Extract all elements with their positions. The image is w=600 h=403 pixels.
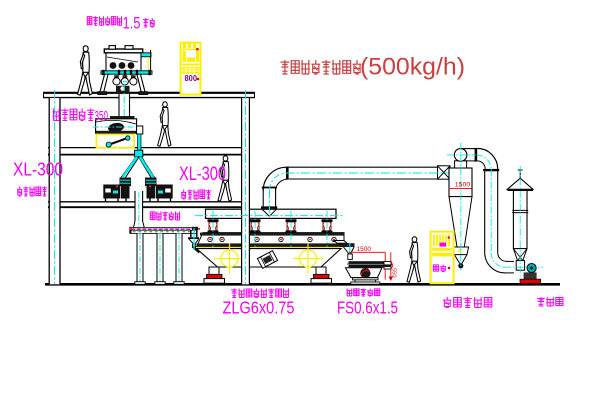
svg-text:1500: 1500: [455, 182, 471, 189]
svg-text:350: 350: [95, 108, 109, 124]
svg-text:ZLG6x0.75: ZLG6x0.75: [223, 298, 295, 318]
svg-text:FS0.6x1.5: FS0.6x1.5: [337, 298, 398, 318]
svg-text:1.5: 1.5: [123, 14, 141, 33]
svg-text:XL-300: XL-300: [179, 164, 226, 185]
svg-text:(500kg/h): (500kg/h): [360, 54, 465, 81]
svg-text:1500: 1500: [357, 246, 372, 253]
svg-text:800: 800: [185, 74, 198, 83]
svg-text:XL-300: XL-300: [13, 159, 63, 180]
svg-text:550: 550: [391, 268, 397, 278]
